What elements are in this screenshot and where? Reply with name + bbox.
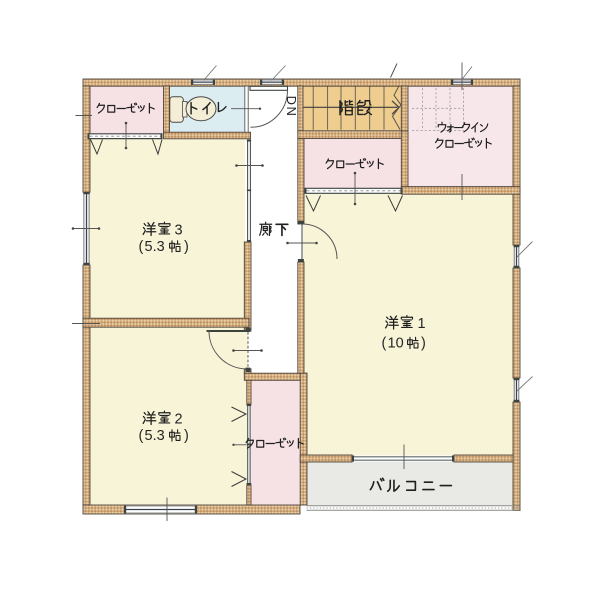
svg-text:(: ( (139, 428, 144, 444)
svg-text:1: 1 (418, 316, 426, 332)
svg-text:2: 2 (175, 412, 183, 428)
svg-text:(: ( (139, 239, 144, 255)
svg-text:3: 3 (175, 223, 183, 239)
svg-text:5.3: 5.3 (145, 239, 165, 255)
svg-text:10: 10 (388, 336, 404, 352)
svg-text:(: ( (382, 336, 387, 352)
svg-text:5.3: 5.3 (145, 428, 165, 444)
svg-text:): ) (421, 336, 426, 352)
svg-text:): ) (184, 428, 189, 444)
svg-text:DN: DN (284, 96, 299, 118)
svg-text:): ) (184, 239, 189, 255)
